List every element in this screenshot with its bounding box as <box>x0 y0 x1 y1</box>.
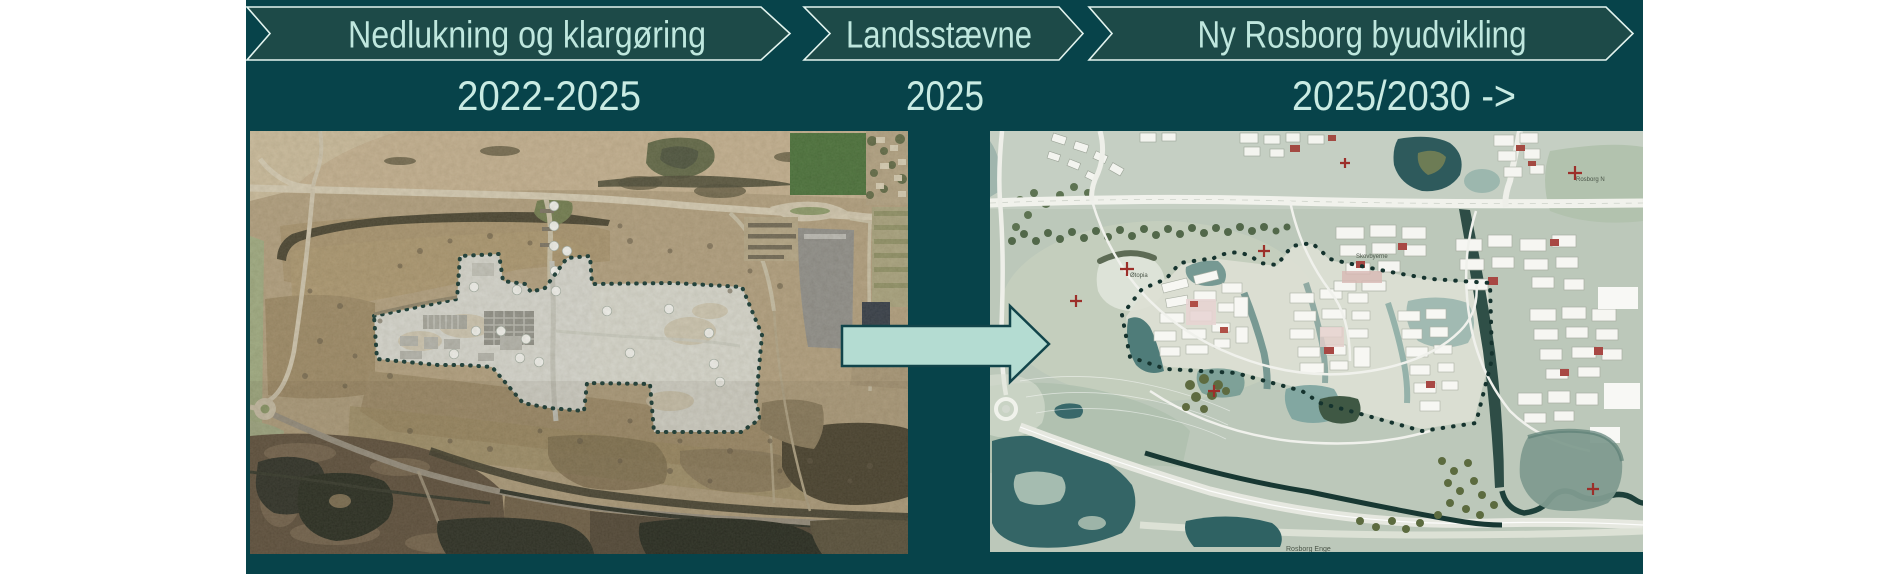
svg-text:Ny Rosborg byudvikling: Ny Rosborg byudvikling <box>1198 15 1527 57</box>
svg-text:Nedlukning og klargøring: Nedlukning og klargøring <box>348 15 706 57</box>
svg-text:Skovbyerne: Skovbyerne <box>1356 254 1388 260</box>
svg-text:Rosborg Enge: Rosborg Enge <box>1286 546 1331 552</box>
svg-text:Øtopia: Øtopia <box>1130 273 1148 279</box>
svg-text:2025: 2025 <box>906 72 984 119</box>
svg-text:Rosborg N: Rosborg N <box>1576 177 1605 183</box>
svg-text:Landsstævne: Landsstævne <box>846 15 1032 57</box>
svg-text:2022-2025: 2022-2025 <box>457 72 641 119</box>
svg-text:2025/2030 ->: 2025/2030 -> <box>1292 72 1516 119</box>
